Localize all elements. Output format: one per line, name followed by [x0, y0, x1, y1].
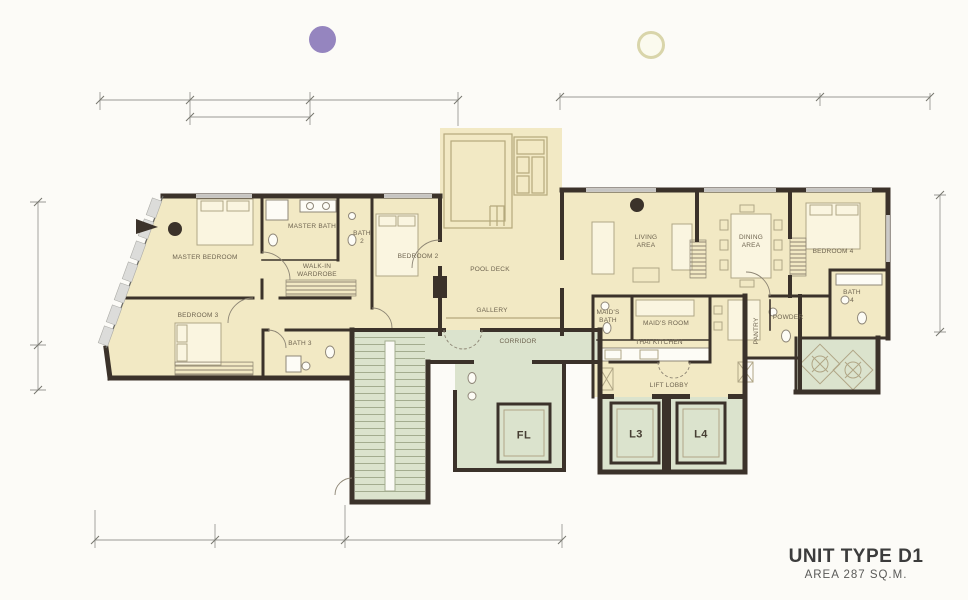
floor-plan-drawing — [0, 0, 968, 600]
room-label-living-area: LIVING AREA — [629, 234, 663, 250]
room-label-bath-3: BATH 3 — [288, 340, 311, 348]
room-label-bedroom-2: BEDROOM 2 — [398, 253, 439, 261]
title-block: UNIT TYPE D1 AREA 287 SQ.M. — [750, 546, 962, 581]
unit-area: AREA 287 SQ.M. — [750, 569, 962, 581]
floor-plan-canvas: MASTER BEDROOMMASTER BATHBATH 2WALK-IN W… — [0, 0, 968, 600]
room-label-master-bedroom: MASTER BEDROOM — [172, 254, 237, 262]
room-label-corridor: CORRIDOR — [500, 338, 537, 346]
room-label-pool-deck: POOL DECK — [470, 266, 510, 274]
unit-type-title: UNIT TYPE D1 — [750, 546, 962, 568]
room-label-bath-2: BATH 2 — [352, 230, 372, 246]
fire-stairs — [355, 337, 425, 495]
room-label-powder: POWDER — [773, 314, 803, 322]
room-label-bath-4: BATH 4 — [842, 289, 862, 305]
legend-dot-cream — [637, 31, 665, 59]
room-label-walk-in-wardrobe: WALK-IN WARDROBE — [292, 263, 342, 279]
column-dot — [168, 222, 182, 236]
room-label-maids-bath: MAID'S BATH — [593, 309, 623, 325]
room-label-bedroom-3: BEDROOM 3 — [178, 312, 219, 320]
room-label-master-bath: MASTER BATH — [288, 223, 336, 231]
room-label-gallery: GALLERY — [476, 307, 507, 315]
room-label-lift-l3: L3 — [629, 428, 643, 441]
legend-dot-purple — [309, 26, 336, 53]
column-dot — [630, 198, 644, 212]
room-label-maids-room: MAID'S ROOM — [643, 320, 689, 328]
room-label-bedroom-4: BEDROOM 4 — [813, 248, 854, 256]
room-label-pantry: PANTRY — [753, 318, 761, 345]
room-label-dining-area: DINING AREA — [734, 234, 768, 250]
room-label-lift-l4: L4 — [694, 428, 708, 441]
room-label-lift-lobby: LIFT LOBBY — [650, 382, 689, 390]
room-label-lift-fl: FL — [517, 429, 531, 442]
room-label-thai-kitchen: THAI KITCHEN — [635, 339, 683, 347]
